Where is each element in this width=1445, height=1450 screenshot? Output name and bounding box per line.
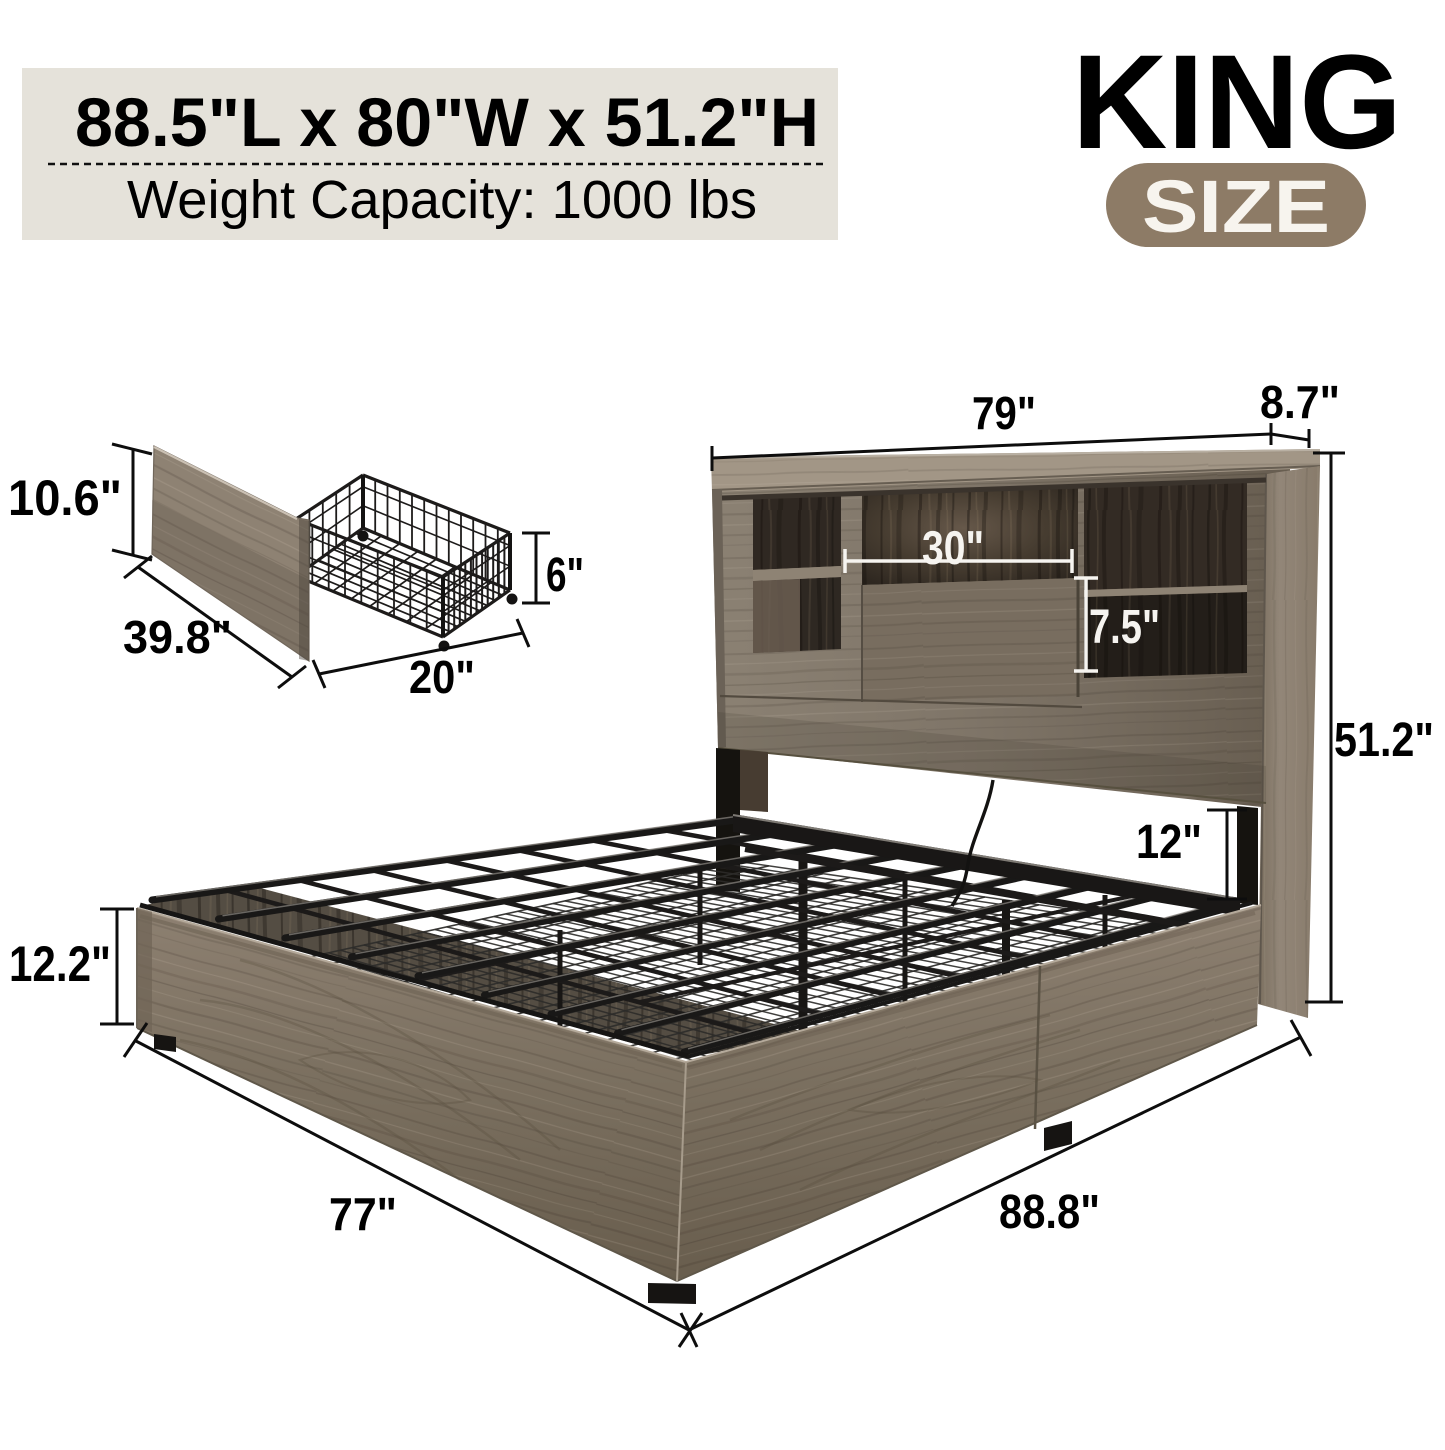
svg-text:79": 79" (972, 387, 1036, 439)
svg-text:10.6": 10.6" (8, 470, 122, 526)
svg-text:6": 6" (546, 549, 584, 602)
svg-text:20": 20" (409, 651, 475, 703)
svg-text:SIZE: SIZE (1142, 165, 1330, 248)
svg-text:8.7": 8.7" (1260, 376, 1340, 428)
svg-text:KING: KING (1072, 28, 1402, 177)
svg-text:7.5": 7.5" (1089, 601, 1160, 654)
svg-text:30": 30" (922, 521, 984, 574)
svg-text:12": 12" (1136, 816, 1202, 869)
svg-text:51.2": 51.2" (1334, 714, 1434, 767)
svg-text:39.8": 39.8" (123, 611, 232, 663)
svg-text:77": 77" (329, 1188, 397, 1240)
svg-text:12.2": 12.2" (9, 936, 111, 992)
svg-text:Weight Capacity: 1000 lbs: Weight Capacity: 1000 lbs (127, 170, 757, 230)
svg-text:88.5"L x 80"W x 51.2"H: 88.5"L x 80"W x 51.2"H (75, 84, 819, 161)
svg-text:88.8": 88.8" (999, 1186, 1100, 1239)
